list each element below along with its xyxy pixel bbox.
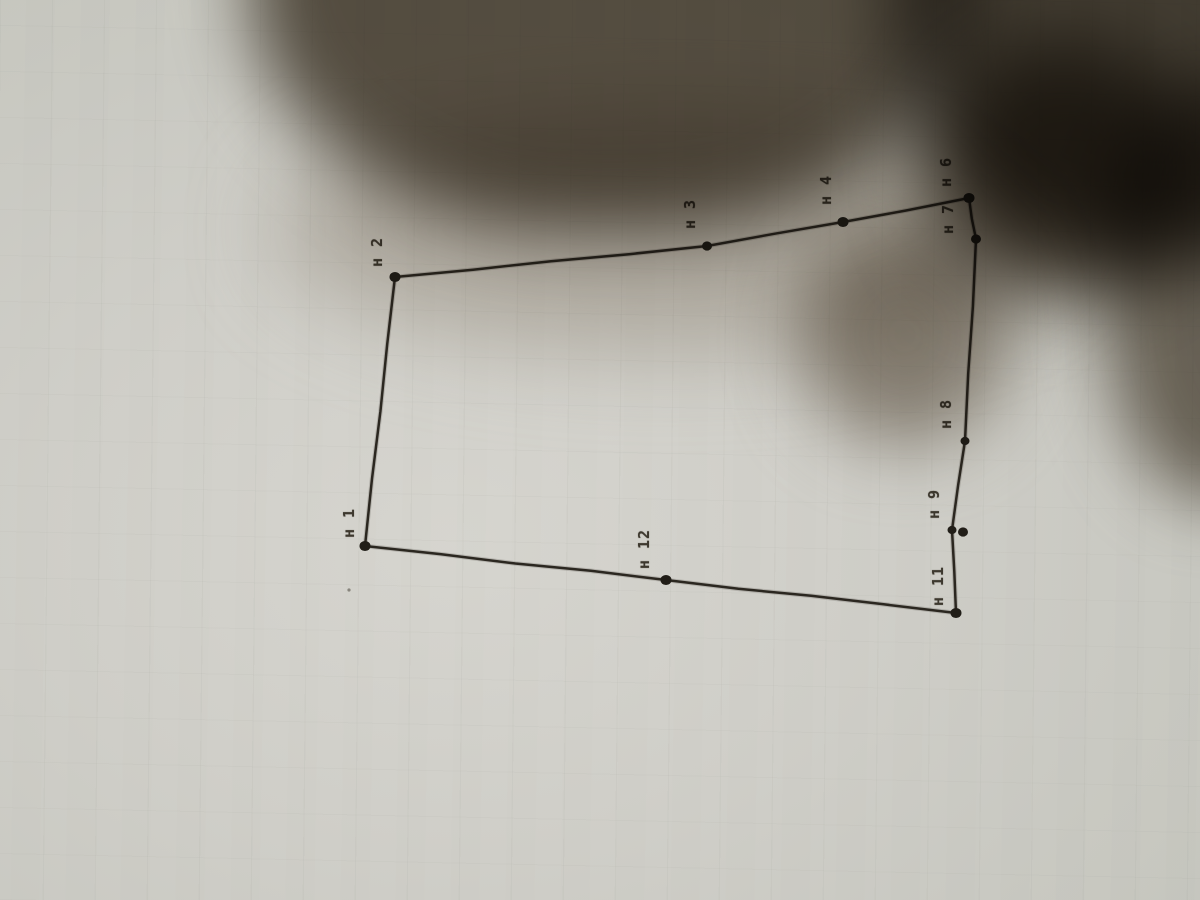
- vertex-dot-n3: [702, 241, 712, 250]
- vertex-label-n9: н 9: [925, 489, 943, 519]
- vertex-dot-n2: [390, 272, 401, 282]
- vertex-dot-n9: [948, 526, 957, 534]
- vertex-label-n12: н 12: [635, 529, 653, 569]
- parcel-outline-halo: [365, 198, 976, 613]
- vertex-label-n11: н 11: [929, 566, 947, 606]
- vertex-dot-n11: [951, 608, 962, 618]
- paper-speck: [347, 588, 350, 591]
- vertex-dot-n1: [360, 541, 371, 551]
- vertex-label-n7: н 7: [939, 204, 957, 234]
- parcel-diagram: [0, 0, 1200, 900]
- vertex-dot-n4: [838, 217, 849, 227]
- vertex-label-n2: н 2: [368, 237, 386, 267]
- vertex-dot-n10: [958, 527, 968, 536]
- parcel-outline-path: [365, 198, 976, 613]
- vertex-dot-n8: [961, 437, 970, 445]
- vertex-label-n3: н 3: [681, 199, 699, 229]
- photo-of-paper: н 1н 2н 3н 4н 6н 7н 8н 9н 11н 12: [0, 0, 1200, 900]
- vertex-dot-n12: [661, 575, 672, 585]
- vertex-label-n4: н 4: [817, 175, 835, 205]
- vertex-label-n1: н 1: [340, 508, 358, 538]
- vertex-label-n6: н 6: [937, 157, 955, 187]
- vertex-dot-n6: [964, 193, 975, 203]
- vertex-label-n8: н 8: [937, 399, 955, 429]
- vertex-dot-n7: [971, 234, 981, 243]
